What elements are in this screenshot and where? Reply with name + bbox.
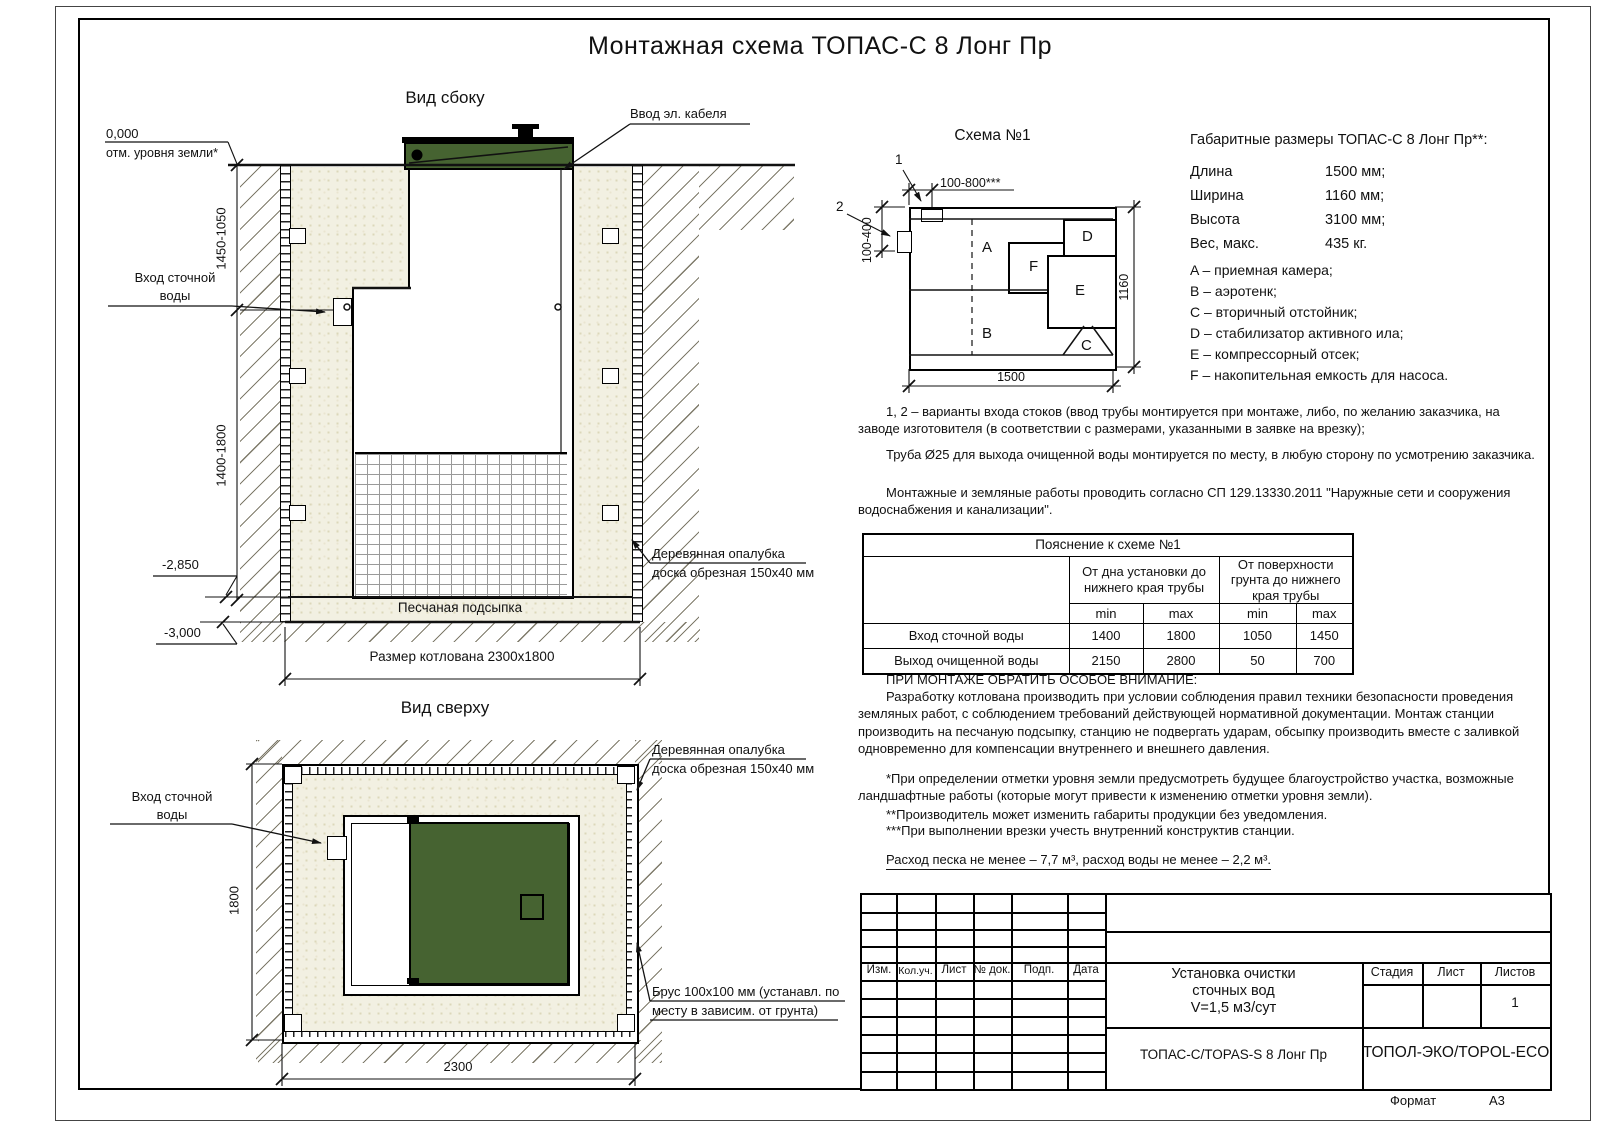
inlet-pipe-side — [333, 298, 352, 326]
inlet-option-2 — [897, 231, 912, 253]
spec-value: 1160 мм; — [1325, 188, 1384, 205]
stamp-line — [1362, 962, 1364, 1089]
spec-label: Длина — [1190, 164, 1232, 181]
dim-100-400: 100-400 — [860, 205, 874, 275]
corner-bracket — [617, 1014, 635, 1032]
stamp-col-list: Лист — [935, 964, 973, 977]
inlet-option-1 — [921, 209, 943, 222]
cable-entry-label: Ввод эл. кабеля — [630, 107, 727, 122]
spec-label: Ширина — [1190, 188, 1244, 205]
stamp-line — [896, 895, 898, 1089]
stamp-line — [1105, 931, 1550, 933]
note-inlet-variants: 1, 2 – варианты входа стоков (ввод трубы… — [858, 403, 1542, 438]
stamp-line — [1011, 895, 1013, 1089]
stamp-col-koluch: Кол.уч. — [896, 965, 935, 977]
tank-lid-side — [404, 142, 574, 170]
spec-value: 3100 мм; — [1325, 212, 1385, 229]
legend-item: B – аэротенк; — [1190, 283, 1277, 299]
inlet-label-line2: воды — [112, 808, 232, 823]
legend-item: F – накопительная емкость для насоса. — [1190, 367, 1448, 383]
stamp-line — [862, 1071, 1105, 1073]
consumption-note: Расход песка не менее – 7,7 м³, расход в… — [886, 853, 1271, 870]
stamp-line — [862, 1052, 1105, 1054]
side-view-title: Вид сбоку — [340, 88, 550, 108]
table-empty-cell — [863, 556, 1069, 624]
stamp-line — [862, 929, 1105, 931]
stamp-line — [1067, 895, 1069, 1089]
formwork-label-line2: доска обрезная 150х40 мм — [652, 566, 814, 581]
chamber-c-label: C — [1081, 337, 1092, 354]
page-title: Монтажная схема ТОПАС-С 8 Лонг Пр — [520, 32, 1120, 61]
title-block: Изм. Кол.уч. Лист № док. Подп. Дата Уста… — [860, 893, 1552, 1091]
formwork-label-line1: Деревянная опалубка — [652, 547, 785, 562]
stamp-col-ndok: № док. — [973, 964, 1011, 977]
sheets-value: 1 — [1480, 995, 1550, 1011]
drawing-sheet: Монтажная схема ТОПАС-С 8 Лонг Пр Вид сб… — [0, 0, 1600, 1131]
ground-hatch-bottom — [240, 622, 700, 642]
formwork-clip — [602, 368, 619, 384]
stamp-col-data: Дата — [1067, 964, 1105, 977]
inlet-label-line2: воды — [115, 289, 235, 304]
ground-hatch-top — [258, 740, 662, 764]
level-mid: -2,850 — [162, 558, 199, 573]
table-row-label: Вход сточной воды — [863, 624, 1069, 649]
ground-hatch-left — [240, 165, 281, 642]
top-view-title: Вид сверху — [340, 698, 550, 718]
tank-lid-top — [409, 822, 569, 985]
table-group2: От поверхности грунта до нижнего края тр… — [1219, 556, 1353, 604]
inlet-label-line1: Вход сточной — [112, 790, 232, 805]
zero-mark-sub: отм. уровня земли* — [106, 146, 218, 160]
schema-title: Схема №1 — [925, 127, 1060, 145]
attention-title: ПРИ МОНТАЖЕ ОБРАТИТЬ ОСОБОЕ ВНИМАНИЕ: — [858, 671, 1542, 688]
ground-hatch-right-top — [699, 165, 794, 230]
table-cell: 1800 — [1143, 624, 1219, 649]
project-name-line3: V=1,5 м3/сут — [1105, 1000, 1362, 1017]
stamp-line — [862, 1016, 1105, 1018]
formwork-label-line1: Деревянная опалубка — [652, 743, 785, 758]
project-name-line1: Установка очистки — [1105, 966, 1362, 983]
legend-item: D – стабилизатор активного ила; — [1190, 325, 1404, 341]
stamp-line — [862, 912, 1105, 914]
lid-hinge-mark — [407, 817, 419, 823]
stamp-line — [935, 895, 937, 1089]
footnote-2: **Производитель может изменить габариты … — [858, 806, 1542, 823]
tank-ribbed-section — [355, 452, 567, 596]
stamp-col-podp: Подп. — [1011, 964, 1067, 977]
ground-hatch-left — [256, 740, 282, 1063]
formwork-clip — [289, 505, 306, 521]
corner-bracket — [284, 766, 302, 784]
specs-title: Габаритные размеры ТОПАС-С 8 Лонг Пр**: — [1190, 132, 1487, 149]
explanation-table: Пояснение к схеме №1 От дна установки до… — [862, 533, 1354, 675]
table-title: Пояснение к схеме №1 — [863, 534, 1353, 556]
table-max: max — [1296, 604, 1353, 624]
inlet-pipe-top — [327, 836, 347, 860]
footnote-1: *При определении отметки уровня земли пр… — [858, 770, 1542, 805]
formwork-clip — [289, 228, 306, 244]
corner-bracket — [284, 1014, 302, 1032]
doc-name: ТОПАС-С/TOPAS-S 8 Лонг Пр — [1105, 1047, 1362, 1063]
formwork-clip — [289, 368, 306, 384]
dim-lower: 1400-1800 — [215, 420, 230, 490]
marker-1: 1 — [895, 152, 903, 168]
sheets-label: Листов — [1480, 965, 1550, 979]
chamber-b-label: B — [982, 325, 992, 342]
legend-item: A – приемная камера; — [1190, 262, 1333, 278]
project-name-line2: сточных вод — [1105, 983, 1362, 1000]
format-value: А3 — [1489, 1094, 1505, 1109]
table-min: min — [1219, 604, 1296, 624]
note-sp-standard: Монтажные и земляные работы проводить со… — [858, 484, 1542, 519]
corner-bracket — [617, 766, 635, 784]
table-cell: 1450 — [1296, 624, 1353, 649]
dim-2300: 2300 — [408, 1060, 508, 1075]
table-max: max — [1143, 604, 1219, 624]
vent-hatch-square — [520, 894, 544, 920]
chamber-d-label: D — [1082, 228, 1093, 245]
beam-label-line2: месту в зависим. от грунта) — [652, 1004, 818, 1019]
pit-size-label: Размер котлована 2300х1800 — [312, 649, 612, 665]
table-cell: 1050 — [1219, 624, 1296, 649]
dim-1800: 1800 — [228, 865, 243, 935]
zero-mark: 0,000 — [106, 127, 139, 142]
legend-item: E – компрессорный отсек; — [1190, 346, 1360, 362]
stamp-line — [862, 980, 1105, 982]
table-cell: 1400 — [1069, 624, 1143, 649]
tank-upper-body — [408, 167, 574, 289]
sheet-label: Лист — [1422, 965, 1480, 979]
spec-value: 1500 мм; — [1325, 164, 1385, 181]
stamp-line — [862, 946, 1105, 948]
lid-hinge-mark — [407, 978, 419, 984]
chamber-a-label: A — [982, 239, 992, 256]
stage-label: Стадия — [1362, 965, 1422, 979]
formwork-clip — [602, 228, 619, 244]
inlet-label-line1: Вход сточной — [115, 271, 235, 286]
stamp-line — [1362, 984, 1550, 986]
format-label: Формат — [1390, 1094, 1436, 1109]
chamber-e-label: E — [1075, 282, 1085, 299]
stamp-col-izm: Изм. — [862, 964, 896, 977]
stamp-line — [1105, 1027, 1550, 1029]
dim-100-800: 100-800*** — [940, 176, 1000, 190]
table-group1: От дна установки до нижнего края трубы — [1069, 556, 1219, 604]
spec-label: Высота — [1190, 212, 1240, 229]
company-name: ТОПОЛ-ЭКО/TOPOL-ECO — [1362, 1044, 1550, 1062]
level-bottom: -3,000 — [164, 626, 201, 641]
stamp-line — [862, 1034, 1105, 1036]
stamp-line — [1105, 962, 1550, 964]
formwork-clip — [602, 505, 619, 521]
footnote-3: ***При выполнении врезки учесть внутренн… — [858, 822, 1542, 839]
vent-stem — [518, 129, 533, 138]
stamp-line — [862, 998, 1105, 1000]
dim-upper: 1450-1050 — [215, 203, 230, 273]
spec-label: Вес, макс. — [1190, 236, 1259, 253]
dim-1500: 1500 — [961, 370, 1061, 384]
legend-item: C – вторичный отстойник; — [1190, 304, 1357, 320]
stamp-line — [973, 895, 975, 1089]
spec-value: 435 кг. — [1325, 236, 1367, 253]
beam-label-line1: Брус 100х100 мм (устанавл. по — [652, 985, 839, 1000]
attention-body: Разработку котлована производить при усл… — [858, 688, 1542, 757]
bedding-label: Песчаная подсыпка — [360, 600, 560, 616]
chamber-f-label: F — [1029, 258, 1038, 275]
note-outlet-pipe: Труба Ø25 для выхода очищенной воды монт… — [858, 446, 1542, 463]
formwork-board-right — [632, 165, 643, 622]
formwork-label-line2: доска обрезная 150х40 мм — [652, 762, 814, 777]
table-min: min — [1069, 604, 1143, 624]
dim-1160: 1160 — [1117, 252, 1131, 322]
marker-2: 2 — [836, 199, 844, 215]
